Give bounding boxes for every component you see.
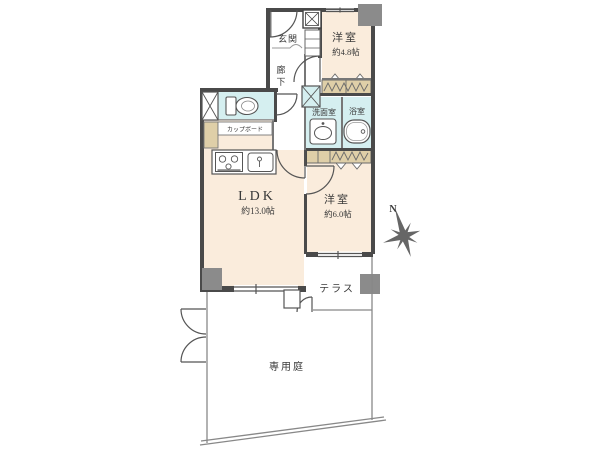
pillar xyxy=(202,268,222,290)
label-genkan: 玄関 xyxy=(278,33,298,44)
label-hallway-2: 下 xyxy=(276,77,285,87)
stove-icon xyxy=(216,153,243,172)
label-hallway-1: 廊 xyxy=(276,64,285,75)
shoe-cabinet xyxy=(305,30,320,56)
label-western-large-size: 約6.0帖 xyxy=(324,209,352,219)
kitchen-counter xyxy=(212,150,276,174)
pillar xyxy=(358,4,382,26)
pipe-shaft-upper-icon xyxy=(303,10,321,28)
hallway-floor xyxy=(274,48,304,150)
label-ldk-size: 約13.0帖 xyxy=(241,205,275,216)
entrance-step-line xyxy=(272,45,302,49)
pipe-shaft-left-icon xyxy=(202,92,218,120)
floor-plan-drawing: N 玄関 洋室 約4.8帖 廊 下 洗面室 浴室 LDK 約13.0帖 洋室 約… xyxy=(0,0,600,450)
kitchen-sink-icon xyxy=(248,153,273,172)
label-bathroom: 浴室 xyxy=(349,106,365,116)
label-terrace: テラス xyxy=(319,283,355,295)
label-cupboard: カップボード xyxy=(227,126,263,134)
label-private-garden: 専用庭 xyxy=(269,360,305,373)
room-western-large-floor xyxy=(307,163,371,252)
boundary-slant-outer xyxy=(200,420,386,445)
window-western-large-south xyxy=(318,251,362,259)
label-western-small: 洋室 xyxy=(332,30,358,44)
floor-plan: N 玄関 洋室 約4.8帖 廊 下 洗面室 浴室 LDK 約13.0帖 洋室 約… xyxy=(0,0,600,450)
entrance-door-arc xyxy=(270,10,297,37)
label-western-large: 洋室 xyxy=(324,192,350,206)
pillar xyxy=(360,274,380,294)
label-western-small-size: 約4.8帖 xyxy=(332,47,360,57)
pipe-shaft-lower-icon xyxy=(302,86,320,107)
toilet-icon xyxy=(226,97,258,115)
washbasin-icon xyxy=(310,119,336,144)
boundary-slant-inner xyxy=(201,417,384,441)
terrace-step xyxy=(284,290,300,308)
garden-gate-arcs xyxy=(181,309,206,362)
label-washroom: 洗面室 xyxy=(312,107,336,117)
north-label: N xyxy=(389,204,397,215)
bathtub-icon xyxy=(344,120,370,143)
label-ldk: LDK xyxy=(238,189,276,204)
compass-icon: N xyxy=(374,201,431,264)
